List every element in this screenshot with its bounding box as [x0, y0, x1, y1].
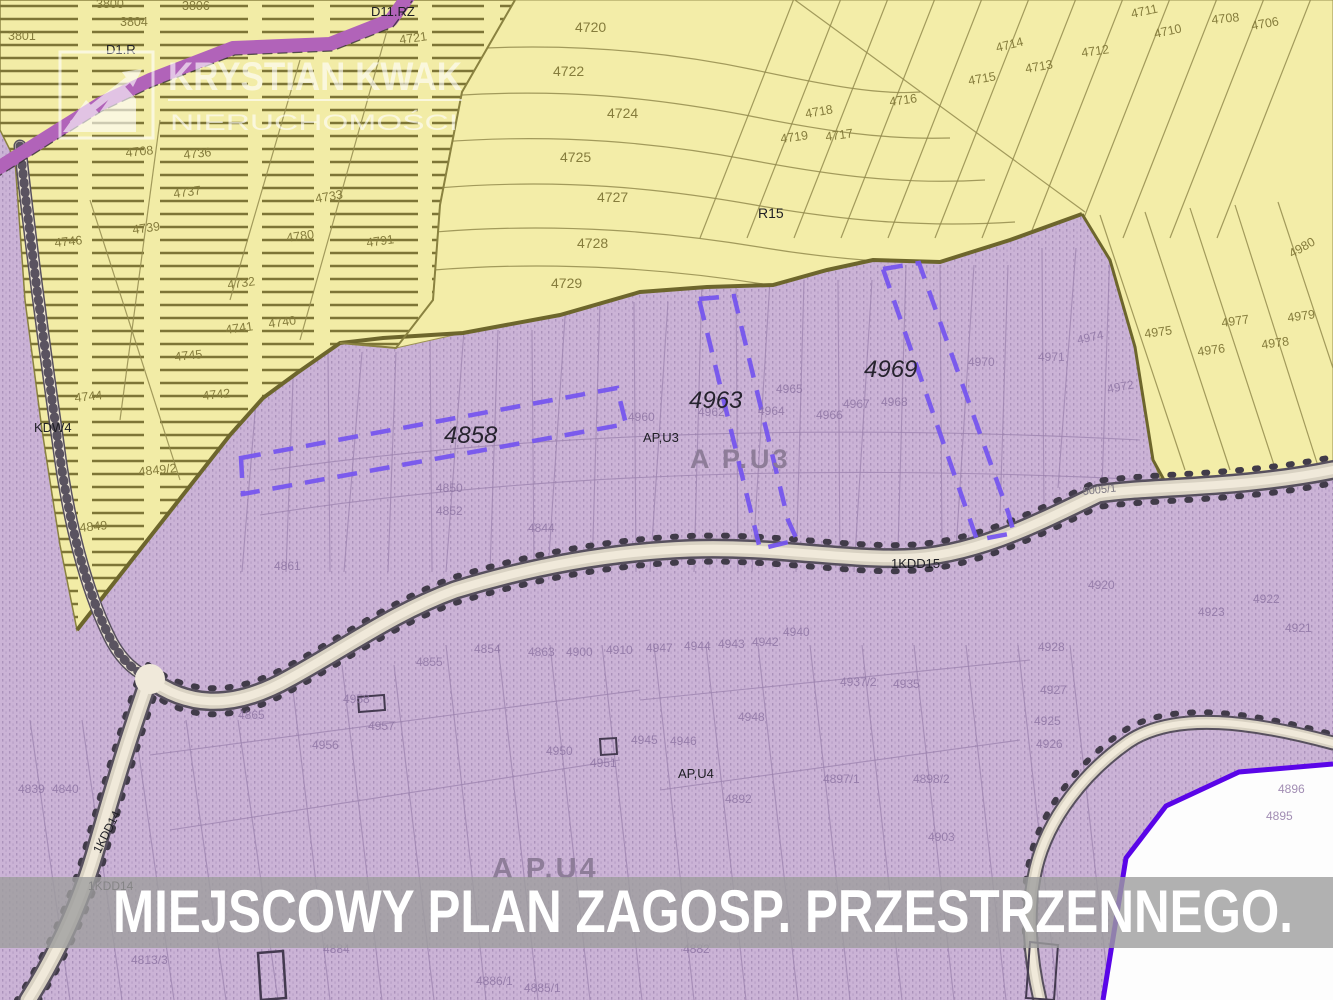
- parcel-label: 4970: [968, 355, 995, 369]
- watermark-subtitle: NIERUCHOMOŚCI: [170, 110, 458, 135]
- parcel-label: 4885/1: [524, 981, 561, 995]
- zone-label: R15: [758, 205, 784, 221]
- parcel-label: 4942: [752, 635, 779, 649]
- parcel-label: 4839: [18, 782, 45, 796]
- parcel-label: 4926: [1036, 737, 1063, 751]
- parcel-label: 4724: [607, 105, 638, 121]
- parcel-label: 4892: [725, 792, 752, 806]
- zone-label: 1KDD15: [891, 556, 940, 571]
- parcel-label: 3800: [96, 0, 124, 11]
- highlighted-parcel-label: 4963: [689, 387, 743, 414]
- road-junction: [135, 664, 165, 694]
- parcel-label: 4744: [74, 388, 103, 405]
- parcel-label: 4849: [79, 518, 108, 535]
- parcel-label: 4965: [776, 382, 803, 396]
- parcel-label: 4944: [684, 639, 711, 653]
- parcel-label: 4957: [368, 719, 395, 733]
- parcel-label: 4956: [312, 738, 339, 752]
- zone-label: D1.R: [106, 42, 136, 57]
- watermark-title: KRYSTIAN KWAK: [168, 55, 462, 99]
- parcel-label: 3801: [8, 29, 36, 43]
- parcel-label: 4900: [566, 645, 593, 659]
- zone-label: AP,U4: [678, 766, 714, 781]
- zone-label: KDW4: [34, 420, 72, 435]
- parcel-label: 4854: [474, 642, 501, 656]
- parcel-label: 4948: [738, 710, 765, 724]
- parcel-label: 4968: [881, 395, 908, 409]
- parcel-label: 4898/2: [913, 772, 950, 786]
- parcel-label: 4840: [52, 782, 79, 796]
- parcel-label: 4928: [1038, 640, 1065, 654]
- zone-label: AP,U3: [643, 430, 679, 445]
- parcel-label: 4964: [758, 404, 785, 418]
- parcel-label: 4947: [646, 641, 673, 655]
- parcel-label: 4865: [238, 708, 265, 722]
- caption-banner: MIEJSCOWY PLAN ZAGOSP. PRZESTRZENNEGO.: [0, 877, 1333, 948]
- parcel-label: 4897/1: [823, 772, 860, 786]
- parcel-label: 4896: [1278, 782, 1305, 796]
- parcel-label: 4742: [202, 386, 231, 403]
- parcel-label: 4960: [628, 410, 655, 424]
- parcel-label: 4863: [528, 645, 555, 659]
- parcel-label: 4895: [1266, 809, 1293, 823]
- parcel-label: 4946: [670, 734, 697, 748]
- parcel-label: 4935: [893, 677, 920, 691]
- parcel-label: 4844: [528, 521, 555, 535]
- parcel-label: 4920: [1088, 578, 1115, 592]
- parcel-label: 4922: [1253, 592, 1280, 606]
- zone-label: A P.U3: [690, 444, 791, 474]
- parcel-label: 4728: [577, 235, 608, 251]
- parcel-label: 4708: [1211, 10, 1240, 27]
- parcel-label: 3806: [182, 0, 210, 13]
- zoning-map: 3800380138043806472147204722472447254727…: [0, 0, 1333, 1000]
- parcel-label: 4729: [551, 275, 582, 291]
- parcel-label: 4813/3: [131, 953, 168, 967]
- parcel-label: 4850: [436, 481, 463, 495]
- parcel-label: 4945: [631, 733, 658, 747]
- parcel-label: 4910: [606, 643, 633, 657]
- parcel-label: 4921: [1285, 621, 1312, 635]
- parcel-label: 4708: [125, 143, 154, 160]
- parcel-label: 4937/2: [840, 675, 877, 689]
- highlighted-parcel-label: 4858: [444, 422, 498, 449]
- parcel-label: 4855: [416, 655, 443, 669]
- parcel-label: 4967: [843, 397, 870, 411]
- highlighted-parcel-label: 4969: [864, 356, 917, 383]
- parcel-label: 4925: [1034, 714, 1061, 728]
- parcel-label: 4950: [546, 744, 573, 758]
- parcel-label: 4886/1: [476, 974, 513, 988]
- zoning-map-screenshot: 3800380138043806472147204722472447254727…: [0, 0, 1333, 1000]
- parcel-label: 3804: [120, 15, 148, 29]
- parcel-label: 4966: [816, 408, 843, 422]
- parcel-label: 4736: [183, 145, 212, 162]
- parcel-label: 4951: [590, 756, 617, 770]
- watermark-divider: [168, 99, 462, 101]
- parcel-label: 4852: [436, 504, 463, 518]
- parcel-label: 4927: [1040, 683, 1067, 697]
- parcel-label: 4725: [560, 149, 591, 165]
- parcel-label: 4720: [575, 19, 606, 35]
- parcel-label: 4745: [174, 347, 203, 364]
- parcel-label: 4722: [553, 63, 584, 79]
- parcel-label: 4971: [1038, 350, 1065, 364]
- parcel-label: 4903: [928, 830, 955, 844]
- parcel-label: 4727: [597, 189, 628, 205]
- parcel-label: 4746: [54, 233, 83, 250]
- banner-title: MIEJSCOWY PLAN ZAGOSP. PRZESTRZENNEGO.: [113, 878, 1293, 945]
- parcel-label: 4923: [1198, 605, 1225, 619]
- parcel-label: 4940: [783, 625, 810, 639]
- parcel-label: 4861: [274, 559, 301, 573]
- zone-label: D11.RZ: [371, 4, 415, 19]
- parcel-label: 4943: [718, 637, 745, 651]
- parcel-label: 4958: [343, 692, 370, 706]
